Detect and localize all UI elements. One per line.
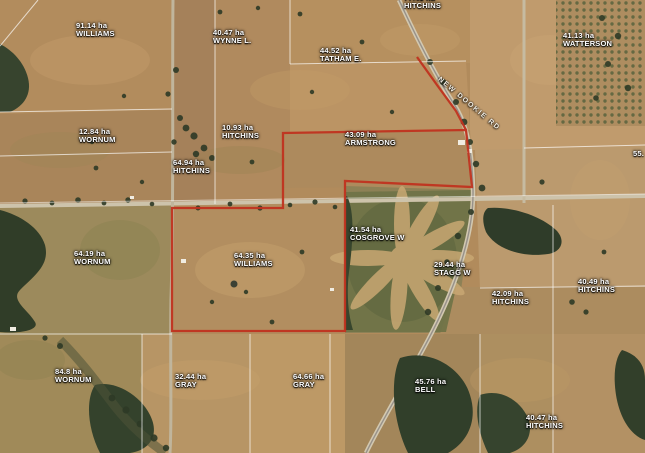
parcel-label: 42.09 haHITCHINS: [492, 290, 529, 306]
parcel-label: 44.52 haTATHAM E.: [320, 47, 362, 63]
parcel-owner: WORNUM: [74, 258, 111, 266]
parcel-owner: TATHAM E.: [320, 55, 362, 63]
parcel-owner: WILLIAMS: [76, 30, 115, 38]
parcel-label: 10.93 haHITCHINS: [222, 124, 259, 140]
parcel-owner: GRAY: [175, 381, 206, 389]
parcel-owner: WATTERSON: [563, 40, 612, 48]
parcel-label: 40.47 haHITCHINS: [526, 414, 563, 430]
parcel-owner: COSGROVE W: [350, 234, 405, 242]
parcel-owner: HITCHINS: [526, 422, 563, 430]
parcel-label: 45.76 haBELL: [415, 378, 446, 394]
parcel-owner: HITCHINS: [492, 298, 529, 306]
parcel-owner: WORNUM: [55, 376, 92, 384]
parcel-label: 91.14 haWILLIAMS: [76, 22, 115, 38]
farm-dam: [231, 281, 238, 288]
parcel-label: 32.44 haGRAY: [175, 373, 206, 389]
parcel-label: 12.84 haWORNUM: [79, 128, 116, 144]
parcel-owner: HITCHINS: [173, 167, 210, 175]
parcel-label: 64.19 haWORNUM: [74, 250, 111, 266]
partial-label: 55.: [633, 150, 644, 158]
parcel-label: 41.54 haCOSGROVE W: [350, 226, 405, 242]
parcel-owner: WORNUM: [79, 136, 116, 144]
parcel-label: 64.94 haHITCHINS: [173, 159, 210, 175]
parcel-owner: ARMSTRONG: [345, 139, 396, 147]
parcel-label: 77.41 haHITCHINS: [404, 0, 441, 10]
parcel-label: 40.47 haWYNNE L.: [213, 29, 251, 45]
parcel-label: 64.35 haWILLIAMS: [234, 252, 273, 268]
parcel-owner: BELL: [415, 386, 446, 394]
parcel-label: 84.8 haWORNUM: [55, 368, 92, 384]
parcel-owner: WILLIAMS: [234, 260, 273, 268]
parcel-owner: STAGG W: [434, 269, 471, 277]
parcel-label: 64.66 haGRAY: [293, 373, 324, 389]
parcel-owner: HITCHINS: [222, 132, 259, 140]
parcel-owner: HITCHINS: [578, 286, 615, 294]
parcel-label: 43.09 haARMSTRONG: [345, 131, 396, 147]
map: 91.14 haWILLIAMS40.47 haWYNNE L.44.52 ha…: [0, 0, 645, 453]
parcel-label: 29.44 haSTAGG W: [434, 261, 471, 277]
parcel-owner: GRAY: [293, 381, 324, 389]
parcel-owner: WYNNE L.: [213, 37, 251, 45]
parcel-owner: HITCHINS: [404, 2, 441, 10]
parcel-label: 40.49 haHITCHINS: [578, 278, 615, 294]
parcel-label: 41.13 haWATTERSON: [563, 32, 612, 48]
